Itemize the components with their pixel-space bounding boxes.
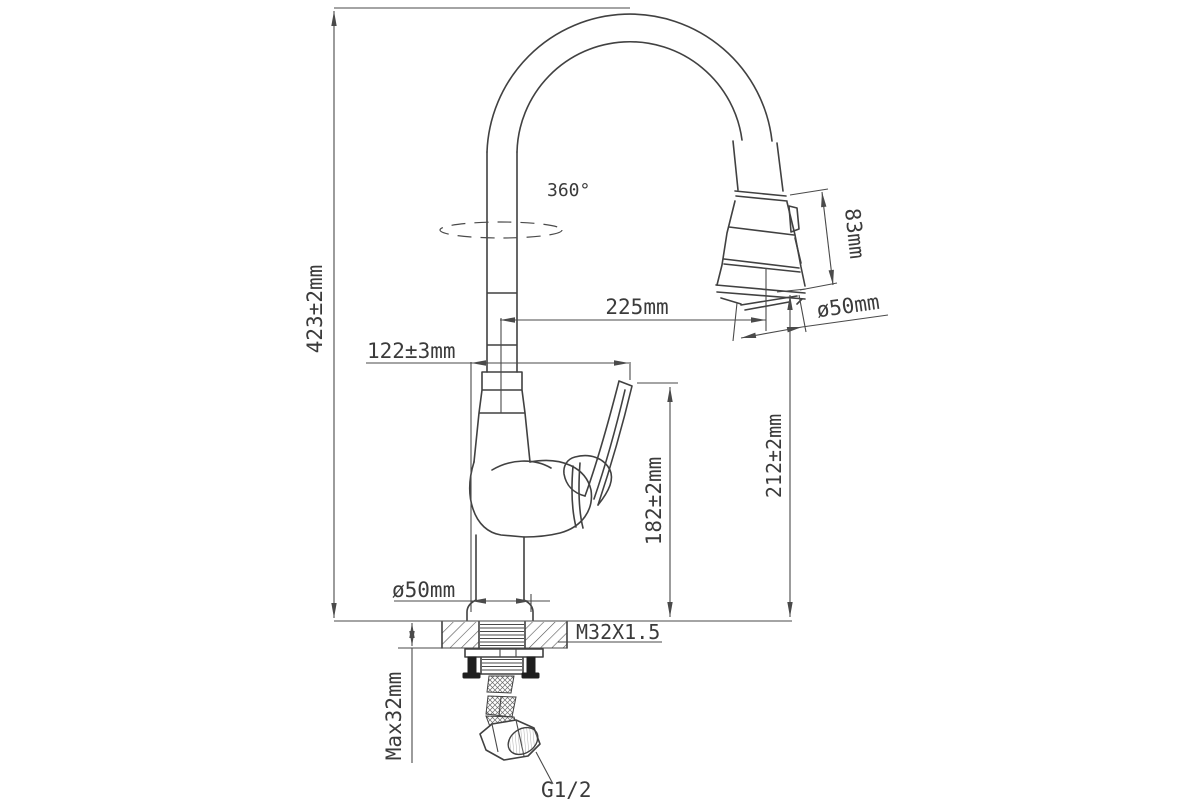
dim-182-label: 182±2mm — [642, 457, 666, 546]
dim-total-height — [334, 8, 630, 618]
base-diameter-label: ø50mm — [392, 578, 455, 602]
faucet-dimension-drawing: 423±2mm 360° 83mm 225mm ø50mm 122±3mm 21… — [0, 0, 1200, 800]
g12-connector — [480, 720, 543, 760]
thread-spec-label: M32X1.5 — [576, 620, 660, 644]
rotation-label: 360° — [547, 180, 590, 201]
dim-423-label: 423±2mm — [303, 265, 327, 354]
spray-head — [716, 141, 805, 310]
dim-83-label: 83mm — [840, 207, 869, 260]
spout-pipe — [487, 152, 517, 372]
rotation-indicator — [440, 222, 562, 238]
gooseneck-spout — [487, 14, 772, 152]
countertop-section — [334, 621, 792, 648]
dim-spout-reach — [500, 268, 766, 413]
dim-212-label: 212±2mm — [762, 414, 786, 498]
dim-122-label: 122±3mm — [367, 339, 456, 363]
handle-lever — [564, 381, 632, 528]
max-thickness-label: Max32mm — [382, 672, 406, 761]
dim-225-label: 225mm — [605, 295, 668, 319]
technical-drawing-canvas: 423±2mm 360° 83mm 225mm ø50mm 122±3mm 21… — [0, 0, 1200, 800]
dim-spray-head-length — [790, 189, 837, 290]
connection-size-label: G1/2 — [541, 778, 592, 800]
